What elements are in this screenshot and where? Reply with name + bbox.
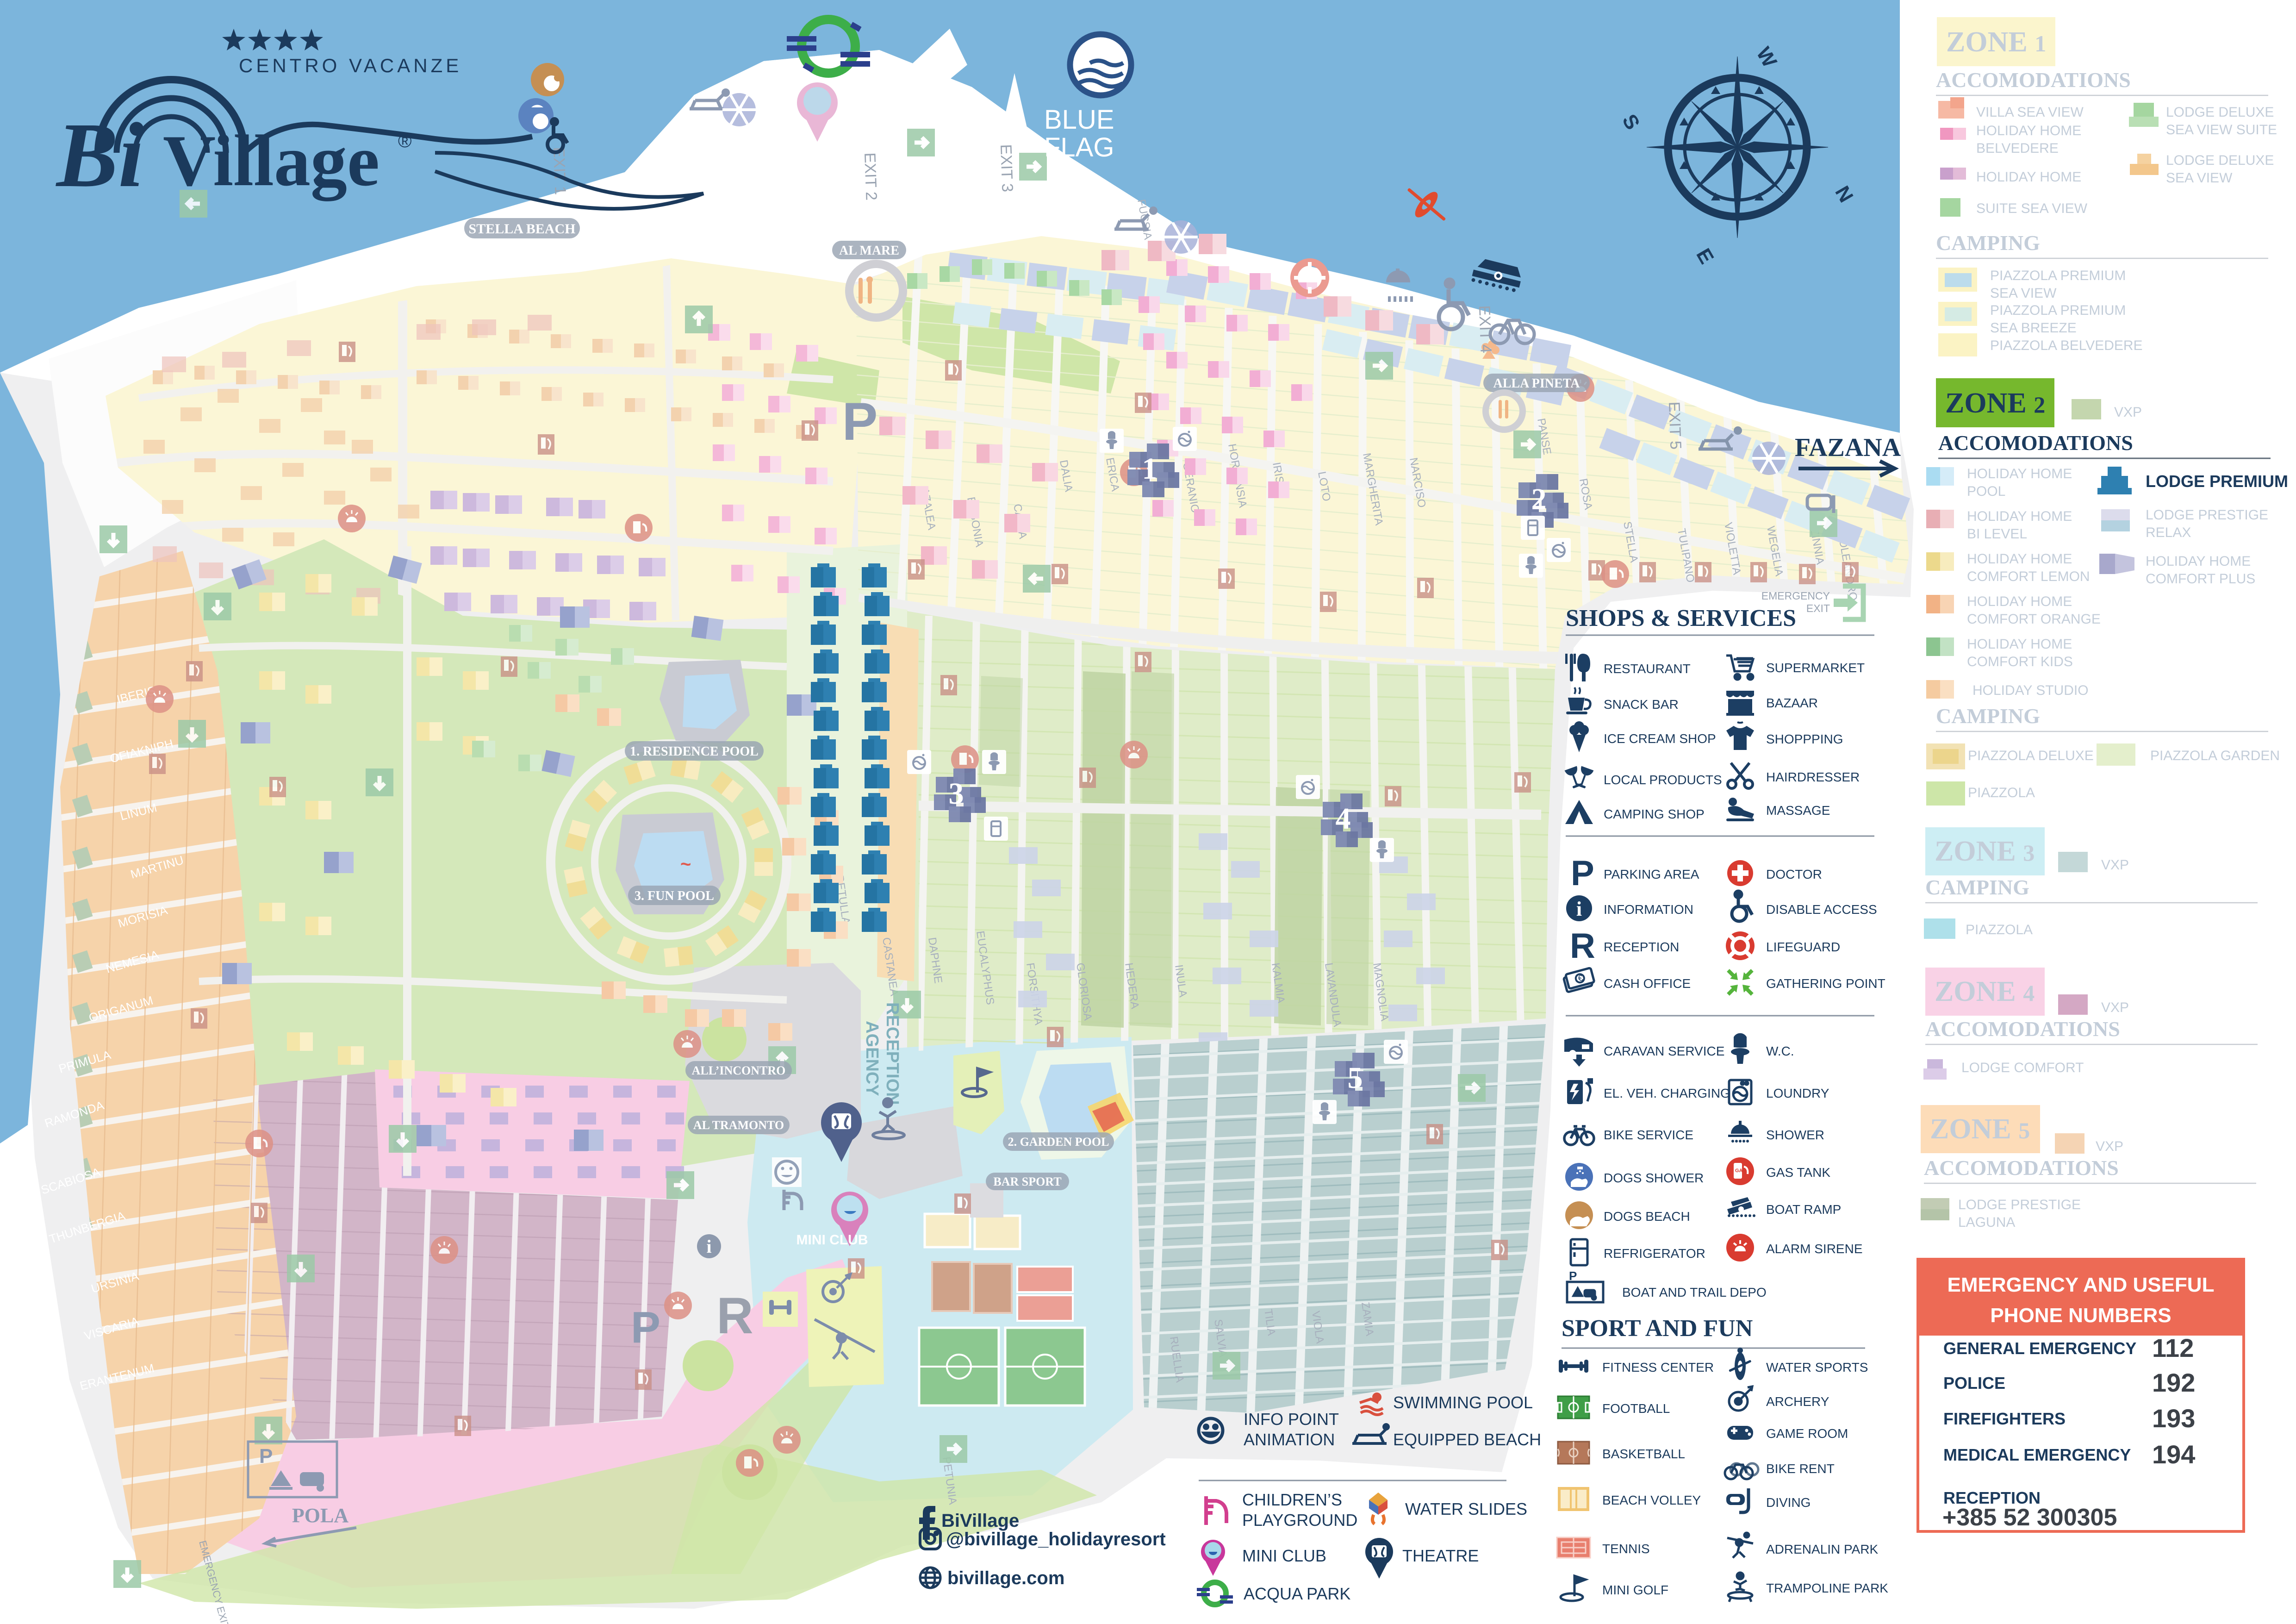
svg-text:2. GARDEN POOL: 2. GARDEN POOL <box>1008 1135 1109 1149</box>
svg-text:1: 1 <box>1142 452 1157 486</box>
svg-text:ACQUA PARK: ACQUA PARK <box>1244 1584 1350 1603</box>
svg-text:HOLIDAY HOME: HOLIDAY HOME <box>1967 466 2072 481</box>
svg-text:EQUIPPED BEACH: EQUIPPED BEACH <box>1393 1430 1541 1449</box>
svg-text:DIVING: DIVING <box>1766 1495 1811 1510</box>
svg-text:W.C.: W.C. <box>1766 1044 1794 1058</box>
svg-text:SEA BREEZE: SEA BREEZE <box>1990 320 2077 336</box>
svg-text:MINI CLUB: MINI CLUB <box>796 1232 868 1248</box>
svg-text:ZONE 1: ZONE 1 <box>1946 26 2046 58</box>
svg-text:112: 112 <box>2152 1333 2194 1362</box>
svg-text:~: ~ <box>680 854 691 874</box>
svg-text:ACCOMODATIONS: ACCOMODATIONS <box>1925 1017 2120 1041</box>
svg-text:ZONE 3: ZONE 3 <box>1935 836 2035 867</box>
svg-text:GAS TANK: GAS TANK <box>1766 1165 1830 1180</box>
svg-text:2: 2 <box>1531 482 1547 516</box>
svg-text:SHOWER: SHOWER <box>1766 1128 1824 1142</box>
svg-text:SEA VIEW: SEA VIEW <box>1990 286 2057 301</box>
svg-text:FLAG: FLAG <box>1044 132 1114 162</box>
svg-text:POLICE: POLICE <box>1943 1374 2005 1393</box>
svg-text:PIAZZOLA GARDEN: PIAZZOLA GARDEN <box>2150 748 2280 763</box>
svg-text:LODGE DELUXE: LODGE DELUXE <box>2166 105 2274 120</box>
svg-text:ALARM SIRENE: ALARM SIRENE <box>1766 1242 1863 1256</box>
svg-text:CENTRO VACANZE: CENTRO VACANZE <box>239 55 462 76</box>
svg-text:3. FUN POOL: 3. FUN POOL <box>635 889 714 903</box>
svg-text:R: R <box>1570 926 1595 966</box>
svg-text:3: 3 <box>949 777 964 811</box>
svg-text:CAMPING: CAMPING <box>1936 231 2040 255</box>
svg-text:POOL: POOL <box>1967 484 2005 499</box>
svg-text:TENNIS: TENNIS <box>1602 1542 1650 1556</box>
svg-text:ZONE 5: ZONE 5 <box>1930 1113 2030 1145</box>
svg-text:PLAYGROUND: PLAYGROUND <box>1242 1511 1357 1530</box>
svg-text:GENERAL EMERGENCY: GENERAL EMERGENCY <box>1943 1339 2136 1358</box>
svg-text:HOLIDAY HOME: HOLIDAY HOME <box>1967 637 2072 652</box>
svg-text:EXIT 3: EXIT 3 <box>997 144 1016 193</box>
svg-text:BIKE RENT: BIKE RENT <box>1766 1462 1835 1476</box>
svg-text:ACCOMODATIONS: ACCOMODATIONS <box>1938 431 2133 455</box>
svg-text:ARCHERY: ARCHERY <box>1766 1394 1829 1409</box>
svg-text:RESTAURANT: RESTAURANT <box>1604 662 1691 676</box>
svg-text:BOAT AND TRAIL DEPO: BOAT AND TRAIL DEPO <box>1622 1285 1767 1299</box>
svg-text:5: 5 <box>1348 1061 1363 1095</box>
svg-text:P: P <box>1571 854 1594 893</box>
svg-text:REFRIGERATOR: REFRIGERATOR <box>1604 1246 1705 1261</box>
svg-text:LODGE PRESTIGE: LODGE PRESTIGE <box>1958 1197 2081 1212</box>
svg-text:BLUE: BLUE <box>1044 105 1114 135</box>
svg-text:PIAZZOLA PREMIUM: PIAZZOLA PREMIUM <box>1990 268 2126 283</box>
svg-text:ALL’INCONTRO: ALL’INCONTRO <box>692 1064 786 1077</box>
svg-text:ICE CREAM SHOP: ICE CREAM SHOP <box>1604 731 1716 746</box>
svg-text:COMFORT LEMON: COMFORT LEMON <box>1967 569 2090 584</box>
svg-text:ZONE 4: ZONE 4 <box>1935 976 2035 1007</box>
svg-text:MEDICAL EMERGENCY: MEDICAL EMERGENCY <box>1943 1445 2131 1464</box>
svg-text:FOOTBALL: FOOTBALL <box>1602 1401 1670 1416</box>
svg-text:CAMPING: CAMPING <box>1936 704 2040 728</box>
svg-text:LODGE DELUXE: LODGE DELUXE <box>2166 153 2274 168</box>
svg-text:VXP: VXP <box>2101 857 2129 873</box>
svg-text:EXIT 5: EXIT 5 <box>1665 401 1685 450</box>
svg-text:DOGS BEACH: DOGS BEACH <box>1604 1209 1690 1224</box>
svg-text:RELAX: RELAX <box>2146 525 2191 540</box>
svg-text:COMFORT KIDS: COMFORT KIDS <box>1967 654 2073 669</box>
svg-text:AL MARE: AL MARE <box>839 244 899 258</box>
svg-text:SEA VIEW SUITE: SEA VIEW SUITE <box>2166 122 2277 137</box>
svg-text:AL TRAMONTO: AL TRAMONTO <box>693 1118 784 1132</box>
svg-text:MINI GOLF: MINI GOLF <box>1602 1583 1668 1597</box>
svg-text:ADRENALIN PARK: ADRENALIN PARK <box>1766 1542 1879 1556</box>
svg-text:PARKING AREA: PARKING AREA <box>1604 867 1699 881</box>
svg-text:PIAZZOLA BELVEDERE: PIAZZOLA BELVEDERE <box>1990 338 2143 353</box>
svg-text:LIFEGUARD: LIFEGUARD <box>1766 940 1840 954</box>
svg-text:+385 52 300305: +385 52 300305 <box>1942 1504 2117 1531</box>
svg-text:CARAVAN SERVICE: CARAVAN SERVICE <box>1604 1044 1724 1058</box>
svg-text:RECEPTION: RECEPTION <box>883 1002 902 1105</box>
svg-text:HAIRDRESSER: HAIRDRESSER <box>1766 770 1860 784</box>
svg-text:EMERGENCY: EMERGENCY <box>1761 590 1830 602</box>
svg-text:CAMPING SHOP: CAMPING SHOP <box>1604 807 1705 821</box>
svg-text:DOGS SHOWER: DOGS SHOWER <box>1604 1171 1704 1185</box>
svg-text:CHILDREN’S: CHILDREN’S <box>1242 1490 1342 1509</box>
svg-text:PIAZZOLA PREMIUM: PIAZZOLA PREMIUM <box>1990 303 2126 318</box>
svg-text:BI LEVEL: BI LEVEL <box>1967 526 2027 542</box>
svg-text:i: i <box>706 1236 711 1257</box>
svg-text:BiVillage: BiVillage <box>941 1511 1019 1531</box>
svg-text:ACCOMODATIONS: ACCOMODATIONS <box>1924 1156 2119 1180</box>
svg-text:SPORT AND FUN: SPORT AND FUN <box>1562 1315 1753 1342</box>
svg-text:HOLIDAY HOME: HOLIDAY HOME <box>2146 554 2251 569</box>
svg-text:LOCAL PRODUCTS: LOCAL PRODUCTS <box>1604 773 1722 787</box>
svg-text:BEACH VOLLEY: BEACH VOLLEY <box>1602 1493 1701 1507</box>
svg-text:SEA VIEW: SEA VIEW <box>2166 170 2233 186</box>
svg-text:SNACK BAR: SNACK BAR <box>1604 697 1679 712</box>
svg-text:BELVEDERE: BELVEDERE <box>1976 141 2059 156</box>
svg-text:VXP: VXP <box>2096 1139 2123 1154</box>
svg-text:FITNESS CENTER: FITNESS CENTER <box>1602 1360 1714 1374</box>
svg-text:ZONE 2: ZONE 2 <box>1945 387 2045 419</box>
svg-text:PIAZZOLA DELUXE: PIAZZOLA DELUXE <box>1968 748 2094 763</box>
svg-text:LODGE PREMIUM: LODGE PREMIUM <box>2146 472 2288 491</box>
svg-text:THEATRE: THEATRE <box>1402 1546 1479 1565</box>
svg-text:CASH OFFICE: CASH OFFICE <box>1604 976 1691 991</box>
svg-text:R: R <box>716 1287 753 1344</box>
svg-text:INFO POINT: INFO POINT <box>1244 1410 1339 1429</box>
svg-text:ANIMATION: ANIMATION <box>1244 1430 1335 1449</box>
svg-text:LODGE PRESTIGE: LODGE PRESTIGE <box>2146 507 2268 523</box>
svg-text:ALLA PINETA: ALLA PINETA <box>1493 376 1580 391</box>
svg-text:BAR SPORT: BAR SPORT <box>993 1175 1061 1188</box>
svg-text:HOLIDAY HOME: HOLIDAY HOME <box>1976 123 2081 138</box>
svg-text:Village: Village <box>163 120 380 201</box>
svg-text:POLA: POLA <box>292 1504 348 1527</box>
svg-text:SUPERMARKET: SUPERMARKET <box>1766 661 1865 675</box>
svg-text:HOLIDAY HOME: HOLIDAY HOME <box>1976 169 2081 185</box>
svg-text:LOUNDRY: LOUNDRY <box>1766 1086 1829 1100</box>
svg-text:PHONE NUMBERS: PHONE NUMBERS <box>1990 1304 2171 1327</box>
svg-text:MASSAGE: MASSAGE <box>1766 803 1830 818</box>
svg-text:GAS: GAS <box>1735 1168 1746 1174</box>
svg-text:P: P <box>1569 1269 1577 1283</box>
svg-text:LODGE COMFORT: LODGE COMFORT <box>1961 1060 2084 1075</box>
svg-text:HOLIDAY HOME: HOLIDAY HOME <box>1967 509 2072 524</box>
svg-text:WATER SPORTS: WATER SPORTS <box>1766 1360 1868 1374</box>
svg-text:VXP: VXP <box>2101 1000 2129 1015</box>
svg-text:193: 193 <box>2152 1404 2195 1433</box>
svg-text:®: ® <box>398 131 411 151</box>
svg-text:EXIT 2: EXIT 2 <box>861 152 880 201</box>
svg-text:ACCOMODATIONS: ACCOMODATIONS <box>1936 68 2131 92</box>
svg-text:STELLA BEACH: STELLA BEACH <box>469 221 576 237</box>
svg-text:SHOPS & SERVICES: SHOPS & SERVICES <box>1566 605 1796 631</box>
svg-text:P: P <box>259 1445 273 1468</box>
svg-text:P: P <box>631 1303 660 1352</box>
svg-text:SWIMMING POOL: SWIMMING POOL <box>1393 1393 1533 1412</box>
svg-text:COMFORT PLUS: COMFORT PLUS <box>2146 571 2255 587</box>
svg-text:HOLIDAY HOME: HOLIDAY HOME <box>1967 551 2072 567</box>
svg-text:EXIT: EXIT <box>1806 602 1830 614</box>
svg-text:BAZAAR: BAZAAR <box>1766 696 1818 710</box>
svg-text:GATHERING POINT: GATHERING POINT <box>1766 976 1885 991</box>
svg-text:EXIT 1: EXIT 1 <box>550 147 569 195</box>
svg-text:INFORMATION: INFORMATION <box>1604 902 1693 917</box>
svg-text:CAMPING: CAMPING <box>1925 875 2029 899</box>
svg-text:HOLIDAY STUDIO: HOLIDAY STUDIO <box>1972 683 2089 698</box>
svg-text:VILLA SEA VIEW: VILLA SEA VIEW <box>1976 105 2084 120</box>
svg-text:@bivillage_holidayresort: @bivillage_holidayresort <box>946 1529 1166 1549</box>
svg-text:COMFORT ORANGE: COMFORT ORANGE <box>1967 612 2101 627</box>
svg-text:DOCTOR: DOCTOR <box>1766 867 1822 881</box>
svg-text:P: P <box>842 392 878 451</box>
svg-text:GAME ROOM: GAME ROOM <box>1766 1426 1848 1441</box>
svg-text:i: i <box>1576 898 1582 920</box>
svg-text:SUITE SEA VIEW: SUITE SEA VIEW <box>1976 201 2088 216</box>
svg-text:LAGUNA: LAGUNA <box>1958 1215 2015 1230</box>
svg-text:SHOPPPING: SHOPPPING <box>1766 732 1843 746</box>
svg-text:FAZANA: FAZANA <box>1795 433 1901 462</box>
svg-text:4: 4 <box>1336 802 1351 836</box>
svg-text:BASKETBALL: BASKETBALL <box>1602 1447 1685 1461</box>
svg-text:BIKE SERVICE: BIKE SERVICE <box>1604 1128 1693 1142</box>
svg-text:BOAT RAMP: BOAT RAMP <box>1766 1202 1841 1217</box>
svg-text:RECEPTION: RECEPTION <box>1604 940 1679 954</box>
svg-text:PIAZZOLA: PIAZZOLA <box>1966 922 2033 937</box>
svg-text:Bi: Bi <box>56 104 144 206</box>
svg-text:AGENCY: AGENCY <box>862 1021 882 1096</box>
svg-text:EL. VEH. CHARGING: EL. VEH. CHARGING <box>1604 1086 1730 1100</box>
svg-text:194: 194 <box>2152 1440 2195 1469</box>
svg-text:HOLIDAY HOME: HOLIDAY HOME <box>1967 594 2072 609</box>
svg-text:FIREFIGHTERS: FIREFIGHTERS <box>1943 1409 2066 1428</box>
svg-text:WATER SLIDES: WATER SLIDES <box>1405 1499 1527 1518</box>
svg-text:PIAZZOLA: PIAZZOLA <box>1968 785 2035 800</box>
svg-text:bivillage.com: bivillage.com <box>947 1568 1064 1588</box>
svg-text:VXP: VXP <box>2114 405 2142 420</box>
svg-text:MINI CLUB: MINI CLUB <box>1242 1546 1326 1565</box>
svg-text:1. RESIDENCE POOL: 1. RESIDENCE POOL <box>630 744 759 759</box>
svg-text:EMERGENCY AND USEFUL: EMERGENCY AND USEFUL <box>1948 1274 2215 1296</box>
svg-text:192: 192 <box>2152 1368 2195 1397</box>
svg-text:TRAMPOLINE PARK: TRAMPOLINE PARK <box>1766 1581 1888 1595</box>
svg-text:DISABLE ACCESS: DISABLE ACCESS <box>1766 902 1877 917</box>
